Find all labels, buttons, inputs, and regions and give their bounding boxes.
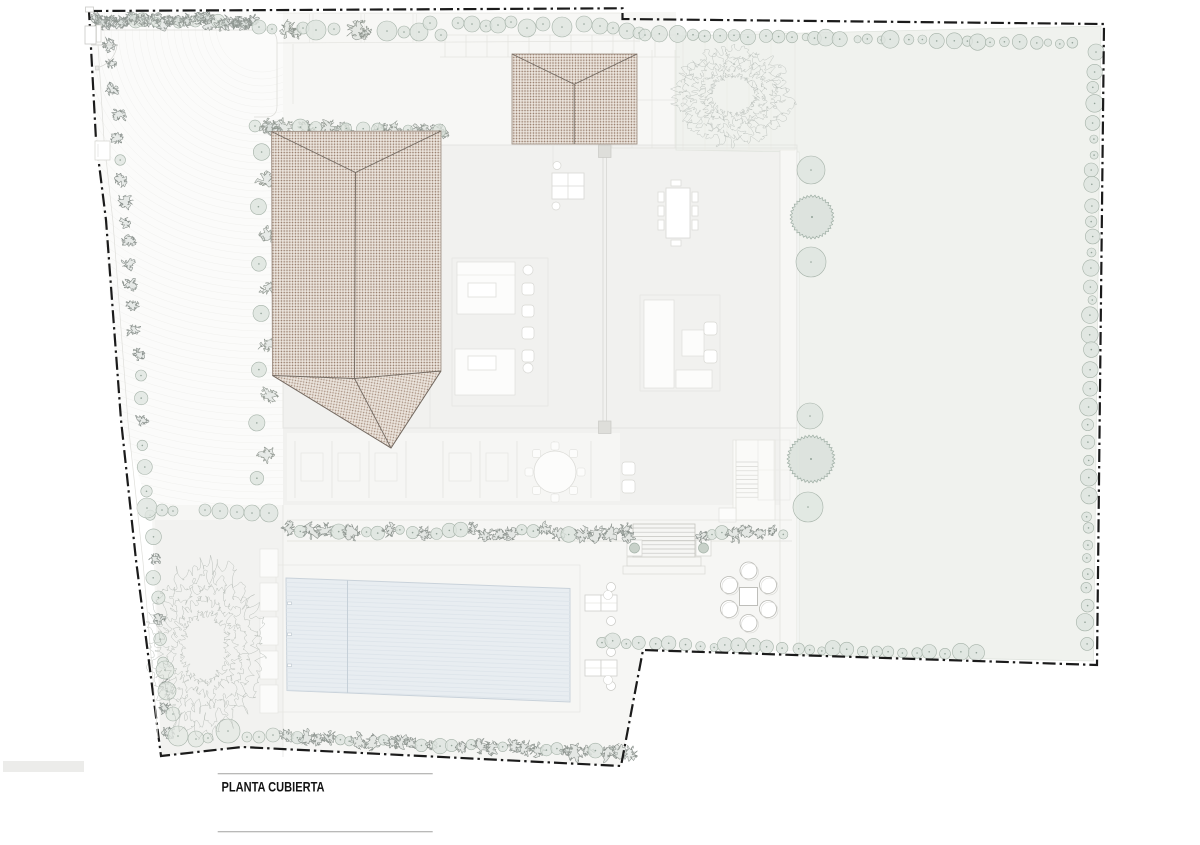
- svg-text:PLANTA CUBIERTA: PLANTA CUBIERTA: [222, 779, 325, 795]
